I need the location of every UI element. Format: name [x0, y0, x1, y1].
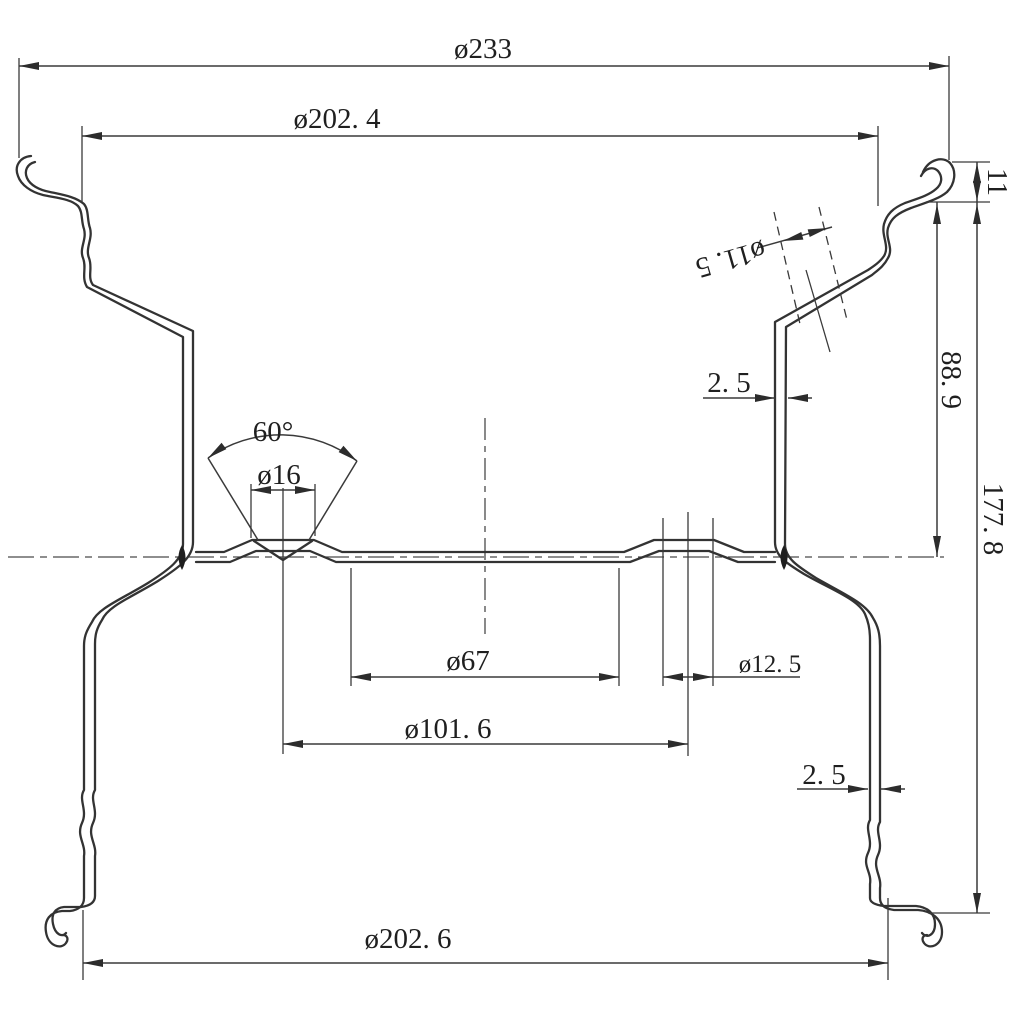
technical-drawing-page: ø233 ø202. 4 11 88. 9 177. 8 ø11. 5 2. 5…	[0, 0, 1024, 1024]
dim-label-top-bead-diameter: ø202. 4	[294, 103, 382, 135]
dim-label-bottom-bead-diameter: ø202. 6	[365, 923, 452, 955]
dim-label-pilot-hole-diameter: ø12. 5	[739, 651, 802, 678]
dim-label-lower-wall-thickness: 2. 5	[802, 759, 846, 791]
rim-left-inner	[26, 162, 193, 935]
dim-label-upper-wall-thickness: 2. 5	[707, 367, 751, 399]
dim-label-countersink-angle: 60°	[253, 416, 294, 448]
rim-right-outer	[785, 159, 954, 946]
wheel-rim-section-drawing: ø233 ø202. 4 11 88. 9 177. 8 ø11. 5 2. 5…	[0, 0, 1024, 1024]
dim-label-lug-hole-diameter: ø16	[257, 459, 301, 491]
extension-lines	[19, 56, 990, 980]
rim-profile	[17, 156, 955, 946]
rim-left-outer	[17, 156, 183, 946]
dimension-arrows	[19, 62, 981, 967]
dim-label-valve-hole-diameter: ø11. 5	[692, 234, 769, 284]
dim-label-flange-height: 11	[981, 168, 1013, 196]
dim-label-overall-height: 177. 8	[977, 483, 1009, 556]
dim-label-upper-section-height: 88. 9	[935, 351, 967, 409]
dim-label-bolt-circle-diameter: ø101. 6	[405, 713, 492, 745]
dim-label-overall-diameter: ø233	[454, 33, 512, 65]
dimension-labels: ø233 ø202. 4 11 88. 9 177. 8 ø11. 5 2. 5…	[253, 33, 1013, 955]
dim-label-center-bore-diameter: ø67	[446, 645, 490, 677]
dimension-lines	[19, 66, 977, 963]
